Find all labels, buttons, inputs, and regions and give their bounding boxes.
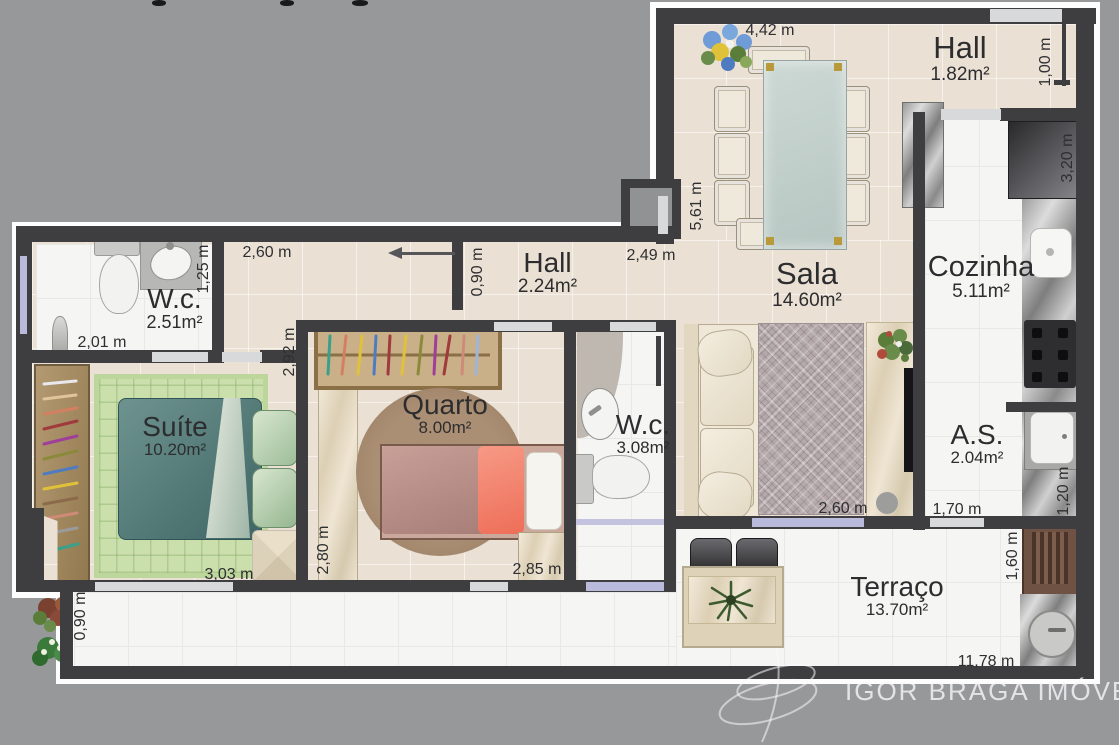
dimension-label: 2,49 m xyxy=(619,248,683,264)
toilet-bowl xyxy=(592,455,650,499)
dimension-label: 0,90 m xyxy=(470,240,486,304)
dimension-label: 1,60 m xyxy=(1005,524,1021,588)
burner xyxy=(1032,328,1042,338)
toilet-tank xyxy=(574,454,594,504)
room-name: W.c. xyxy=(604,410,682,439)
washing-machine-knob xyxy=(1062,434,1067,439)
dimension-label: 2,01 m xyxy=(70,335,134,351)
kitchen-door xyxy=(941,109,1001,120)
wall xyxy=(1006,402,1076,412)
entry-door xyxy=(990,9,1062,22)
sofa-pillow xyxy=(696,469,755,522)
spider-plant-icon xyxy=(706,578,756,622)
faucet xyxy=(166,242,174,250)
dimension-label: 0,90 m xyxy=(73,584,89,648)
dimension-label: 1,25 m xyxy=(196,237,212,301)
wc-social-window xyxy=(586,582,664,591)
grill-grate xyxy=(1032,532,1068,584)
dimension-label: 4,42 m xyxy=(738,23,802,39)
brand-logo-icon xyxy=(710,642,840,745)
cropped-text-mark xyxy=(152,0,166,6)
dining-chair xyxy=(714,133,750,179)
room-area: 14.60m² xyxy=(752,291,862,311)
direction-arrow xyxy=(400,252,455,255)
room-name: A.S. xyxy=(938,420,1016,449)
room-label-terraco: Terraço 13.70m² xyxy=(838,572,956,619)
books-icon xyxy=(318,332,490,378)
drain xyxy=(1046,248,1054,256)
wall xyxy=(1000,108,1076,121)
suite-terrace-window xyxy=(95,582,233,591)
room-label-wc-social: W.c. 3.08m² xyxy=(604,410,682,457)
tv xyxy=(904,368,913,472)
room-name: Terraço xyxy=(838,572,956,601)
cropped-text-mark xyxy=(352,0,368,6)
dimension-tick xyxy=(1054,80,1070,85)
room-name: Cozinha xyxy=(920,252,1042,282)
room-label-hall-entry: Hall 1.82m² xyxy=(905,32,1015,84)
quarto-bed-blanket xyxy=(382,446,482,534)
sala-window xyxy=(658,196,668,234)
quarto-pillow xyxy=(526,452,562,530)
sala-rug xyxy=(758,323,864,515)
bookshelf xyxy=(314,328,502,390)
faucet xyxy=(1048,628,1066,632)
table-corner xyxy=(766,237,774,245)
corridor-window xyxy=(470,582,508,591)
dimension-label: 3,03 m xyxy=(197,567,261,583)
wall xyxy=(913,112,925,530)
room-label-as: A.S. 2.04m² xyxy=(938,420,1016,467)
dimension-label: 1,20 m xyxy=(1056,459,1072,523)
room-area: 3.08m² xyxy=(604,439,682,457)
sala-sliding-door xyxy=(752,518,864,527)
plant-icon xyxy=(872,326,916,368)
door-leaf xyxy=(656,336,661,386)
quarto-door xyxy=(494,322,552,331)
wall xyxy=(1076,8,1094,670)
room-label-quarto: Quarto 8.00m² xyxy=(392,390,498,437)
room-name: Quarto xyxy=(392,390,498,419)
dimension-label: 2,60 m xyxy=(235,245,299,261)
brand-watermark: IGOR BRAGA IMÓVEIS xyxy=(845,676,1119,707)
speaker xyxy=(876,492,898,514)
suite-pillow xyxy=(252,468,298,528)
room-area: 1.82m² xyxy=(905,65,1015,85)
washing-machine-lid xyxy=(1030,412,1074,464)
room-area: 8.00m² xyxy=(392,419,498,437)
table-corner xyxy=(834,63,842,71)
room-area: 2.51m² xyxy=(132,313,217,332)
wc-social-door xyxy=(610,322,656,331)
room-name: Hall xyxy=(500,248,595,277)
quarto-bed-runner xyxy=(478,446,524,534)
dining-chair xyxy=(714,86,750,132)
hall-wall-stub xyxy=(452,234,463,310)
wc-suite-door xyxy=(152,352,208,362)
room-area: 2.24m² xyxy=(500,277,595,297)
dimension-label: 2,85 m xyxy=(505,562,569,578)
dimension-label: 2,80 m xyxy=(316,518,332,582)
direction-arrow-head xyxy=(388,247,402,259)
wall xyxy=(16,226,672,242)
suite-door xyxy=(222,352,262,362)
terrace-sink xyxy=(1028,610,1076,658)
wall xyxy=(564,320,576,584)
room-area: 10.20m² xyxy=(132,441,218,459)
dimension-label: 2,60 m xyxy=(811,501,875,517)
room-label-cozinha: Cozinha 5.11m² xyxy=(920,252,1042,302)
floor-plan: Hall 1.82m² Hall 2.24m² Sala 14.60m² Coz… xyxy=(0,0,1119,745)
table-corner xyxy=(834,237,842,245)
dimension-label: 2,92 m xyxy=(282,320,298,384)
as-terrace-door xyxy=(930,518,984,527)
room-name: Hall xyxy=(905,32,1015,65)
room-name: Suíte xyxy=(132,412,218,441)
wc-suite-window xyxy=(20,256,27,334)
dimension-label: 1,00 m xyxy=(1038,30,1054,94)
room-area: 2.04m² xyxy=(938,449,1016,467)
room-label-suite: Suíte 10.20m² xyxy=(132,412,218,459)
dimension-label: 3,20 m xyxy=(1060,126,1076,190)
dimension-label: 1,70 m xyxy=(925,502,989,518)
room-label-hall: Hall 2.24m² xyxy=(500,248,595,297)
table-corner xyxy=(766,63,774,71)
room-label-sala: Sala 14.60m² xyxy=(752,258,862,310)
shower-glass xyxy=(576,519,668,525)
room-name: Sala xyxy=(752,258,862,291)
suite-pillow xyxy=(252,410,298,466)
dimension-line xyxy=(1062,20,1066,86)
cropped-text-mark xyxy=(280,0,294,6)
room-area: 13.70m² xyxy=(838,601,956,619)
dimension-label: 5,61 m xyxy=(689,174,705,238)
dimension-label: 11,78 m xyxy=(954,654,1018,670)
dining-table xyxy=(763,60,847,250)
room-area: 5.11m² xyxy=(920,282,1042,302)
